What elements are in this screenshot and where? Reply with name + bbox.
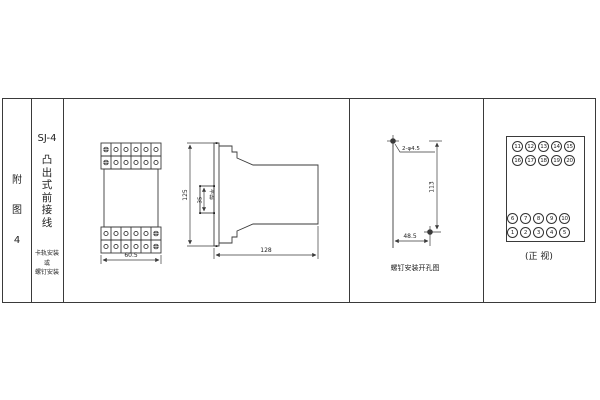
figure-index-label: 附图4 [3,171,31,251]
variant-title-char: 前 [42,193,53,205]
terminal-number: 11 [512,141,523,152]
terminal-number: 8 [533,213,544,224]
front-view-caption: (正 视) [493,249,585,262]
terminal-number: 16 [512,155,523,166]
drill-diagram-caption: 螺钉安装开孔图 [355,263,475,273]
terminal-number: 5 [559,227,570,238]
mounting-note: 卡轨安装或螺钉安装 [31,249,63,278]
drawing-sheet-page: 附图4 SJ-4 凸出式前接线 卡轨安装或螺钉安装 [0,0,600,400]
figure-index-char: 附 [12,171,22,191]
rail-label: 卡轨 [206,189,215,215]
terminal-number: 4 [546,227,557,238]
terminal-number: 10 [559,213,570,224]
column-divider [483,99,484,302]
column-divider [63,99,64,302]
terminal-number: 7 [520,213,531,224]
terminal-number: 20 [564,155,575,166]
terminal-number: 3 [533,227,544,238]
variant-title-char: 接 [42,205,53,217]
column-divider [349,99,350,302]
figure-index-char: 4 [14,231,20,251]
terminal-number: 19 [551,155,562,166]
terminal-number: 18 [538,155,549,166]
variant-title-char: 凸 [42,155,53,167]
variant-title-char: 出 [42,168,53,180]
variant-title-char: 式 [42,180,53,192]
terminal-number: 15 [564,141,575,152]
variant-title: 凸出式前接线 [31,155,63,229]
figure-index-char: 图 [12,201,22,221]
variant-title-char: 线 [42,218,53,230]
terminal-number: 6 [507,213,518,224]
terminal-row-1-5: 12345 [507,227,570,238]
terminal-number: 17 [525,155,536,166]
terminal-number: 13 [538,141,549,152]
terminal-number: 14 [551,141,562,152]
model-label: SJ-4 [31,133,63,144]
terminal-number: 2 [520,227,531,238]
mounting-note-line: 卡轨安装 [35,249,59,259]
terminal-row-11-15: 1112131415 [512,141,575,152]
terminal-number: 1 [507,227,518,238]
terminal-number: 12 [525,141,536,152]
terminal-row-16-20: 1617181920 [512,155,575,166]
mounting-note-line: 螺钉安装 [35,268,59,278]
terminal-row-6-10: 678910 [507,213,570,224]
mounting-note-line: 或 [44,259,50,269]
terminal-number: 9 [546,213,557,224]
